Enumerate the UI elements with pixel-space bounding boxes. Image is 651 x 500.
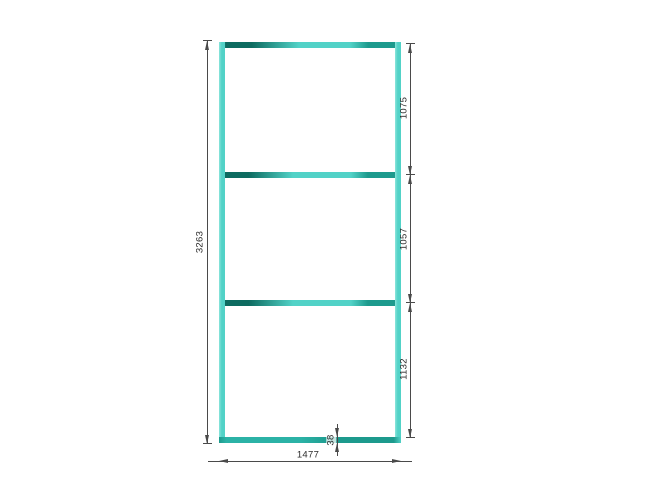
dim-right-arrow-upper-down-icon bbox=[408, 166, 412, 175]
frame-divider-upper bbox=[225, 172, 395, 178]
dim-middle-segment-label: 1057 bbox=[399, 228, 409, 250]
frame-divider-lower bbox=[225, 300, 395, 306]
dim-height-arrow-top-icon bbox=[205, 41, 209, 50]
dim-width-arrow-left-icon bbox=[219, 459, 228, 463]
dim-height-line bbox=[207, 41, 208, 444]
dim-height-label: 3263 bbox=[195, 231, 205, 253]
drawing-canvas: 3263 1075 1057 1132 1477 38 bbox=[0, 0, 651, 500]
frame-top-rail bbox=[219, 42, 401, 48]
dim-width-line bbox=[208, 461, 412, 462]
dim-right-arrow-top-icon bbox=[408, 44, 412, 53]
dim-width-label: 1477 bbox=[297, 450, 319, 460]
dim-height-arrow-bottom-icon bbox=[205, 435, 209, 444]
dim-thickness-label: 38 bbox=[326, 433, 336, 446]
dim-width-arrow-right-icon bbox=[392, 459, 401, 463]
dim-right-arrow-bottom-icon bbox=[408, 429, 412, 438]
dim-top-segment-label: 1075 bbox=[399, 97, 409, 119]
dim-right-arrow-upper-up-icon bbox=[408, 175, 412, 184]
frame-left-member bbox=[219, 42, 225, 443]
dim-right-arrow-lower-up-icon bbox=[408, 303, 412, 312]
dim-right-line bbox=[410, 44, 411, 438]
dim-bottom-segment-label: 1132 bbox=[399, 358, 409, 380]
dim-right-arrow-lower-down-icon bbox=[408, 294, 412, 303]
frame-bottom-rail bbox=[219, 437, 401, 443]
